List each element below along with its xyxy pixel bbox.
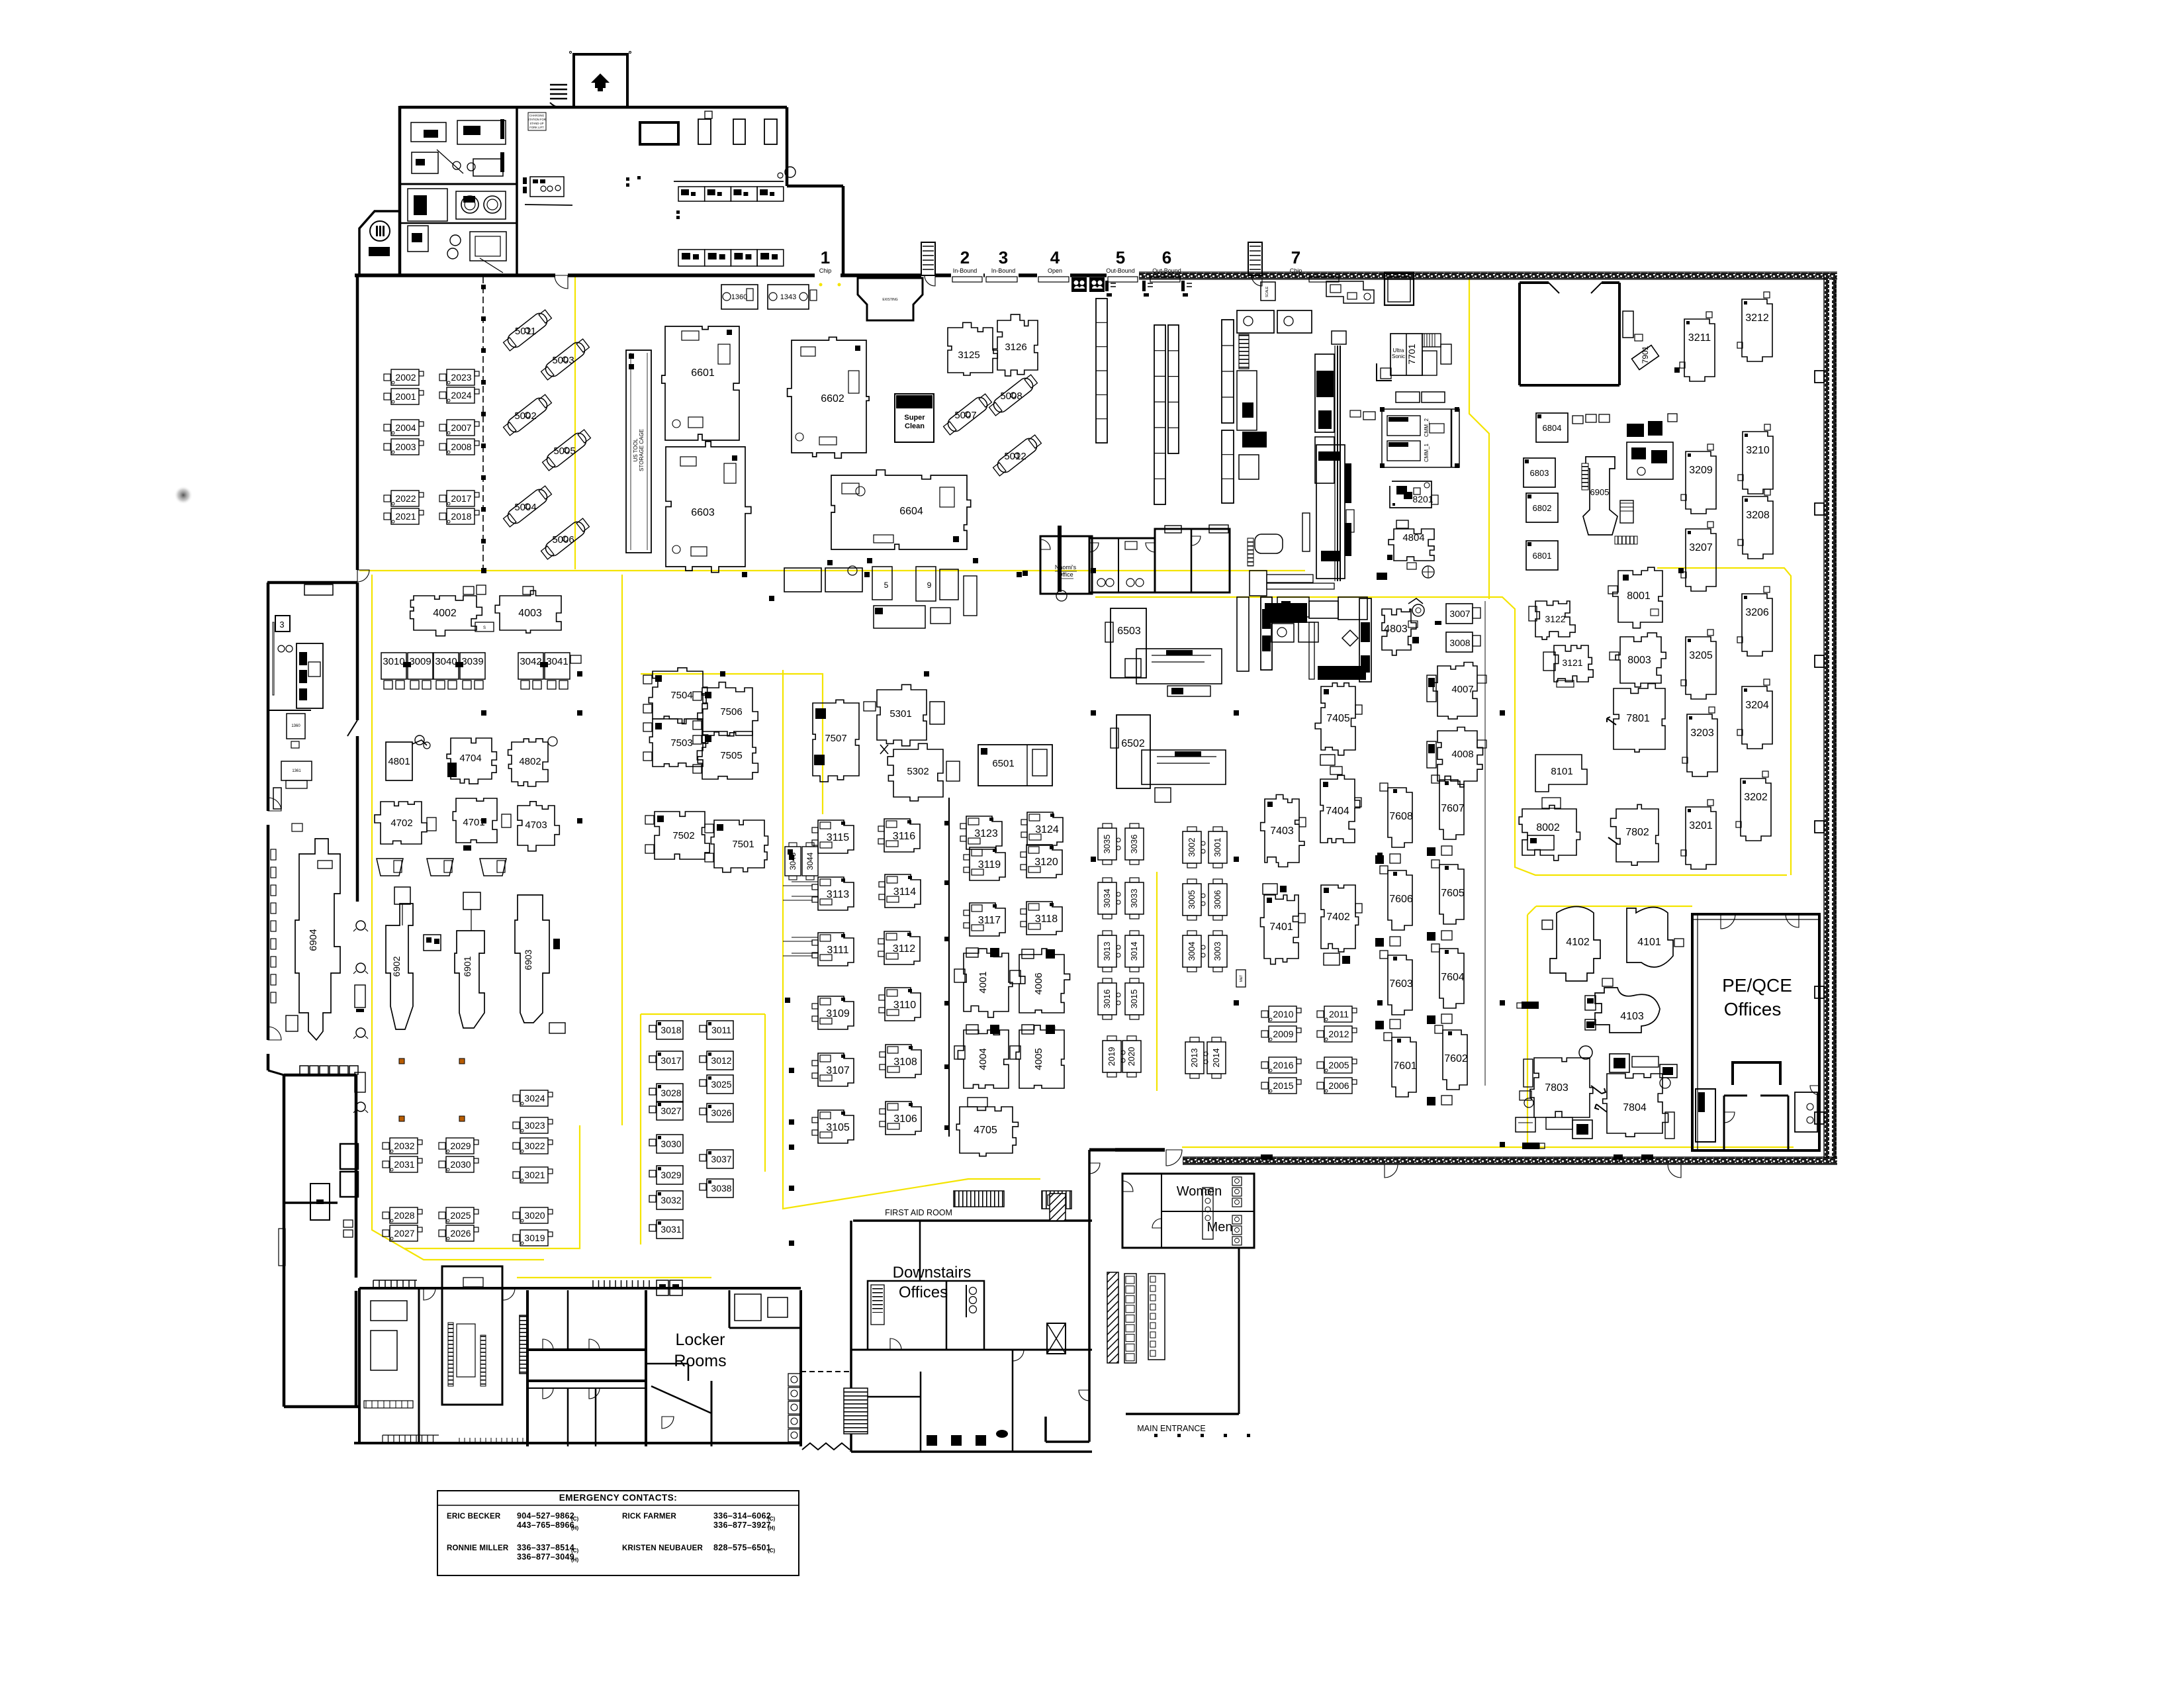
svg-text:828–575–6501: 828–575–6501	[713, 1543, 771, 1552]
svg-text:2: 2	[960, 248, 970, 267]
svg-text:3040: 3040	[435, 656, 457, 667]
svg-text:7608: 7608	[1389, 811, 1413, 822]
svg-text:(H): (H)	[571, 1557, 578, 1563]
svg-text:5003: 5003	[552, 355, 574, 366]
svg-text:4101: 4101	[1637, 937, 1661, 948]
svg-text:5012: 5012	[1004, 451, 1026, 462]
svg-text:2030: 2030	[450, 1159, 471, 1170]
svg-text:CMM_2: CMM_2	[1424, 418, 1430, 437]
svg-text:6801: 6801	[1533, 551, 1552, 561]
svg-text:2002: 2002	[395, 372, 416, 383]
svg-text:6601: 6601	[691, 367, 715, 379]
svg-text:Clean: Clean	[905, 422, 925, 430]
svg-text:Offices: Offices	[1724, 999, 1782, 1019]
svg-text:904–527–9862: 904–527–9862	[517, 1511, 574, 1521]
svg-text:4002: 4002	[433, 608, 457, 619]
svg-text:CMM_1: CMM_1	[1424, 443, 1430, 462]
svg-text:6501: 6501	[992, 758, 1014, 769]
svg-text:3005: 3005	[1187, 890, 1197, 910]
svg-text:3017: 3017	[660, 1055, 681, 1066]
svg-text:STORAGE CAGE: STORAGE CAGE	[639, 429, 645, 471]
svg-text:4006: 4006	[1033, 972, 1044, 994]
svg-text:2031: 2031	[394, 1159, 414, 1170]
svg-text:1361: 1361	[292, 769, 301, 773]
svg-text:3125: 3125	[958, 350, 979, 361]
svg-text:336–877–3927: 336–877–3927	[713, 1521, 771, 1530]
svg-text:4704: 4704	[459, 753, 481, 764]
svg-text:7607: 7607	[1441, 803, 1465, 814]
svg-text:5301: 5301	[889, 708, 911, 720]
svg-text:2025: 2025	[450, 1210, 471, 1221]
svg-text:3034: 3034	[1102, 889, 1112, 908]
svg-text:7507: 7507	[825, 733, 846, 744]
svg-text:3115: 3115	[827, 832, 850, 843]
svg-text:ERIC BECKER: ERIC BECKER	[447, 1513, 501, 1521]
svg-text:2005: 2005	[1328, 1060, 1349, 1070]
svg-text:Out-Bound: Out-Bound	[1152, 267, 1181, 274]
svg-text:3019: 3019	[524, 1233, 545, 1243]
svg-text:6603: 6603	[691, 507, 715, 518]
svg-text:2021: 2021	[395, 511, 416, 522]
svg-text:2007: 2007	[451, 422, 471, 433]
svg-text:3204: 3204	[1745, 700, 1769, 711]
svg-text:6905: 6905	[1590, 487, 1610, 497]
svg-text:3026: 3026	[711, 1107, 731, 1118]
svg-text:3018: 3018	[660, 1025, 681, 1035]
svg-text:SCALE: SCALE	[1265, 286, 1269, 297]
svg-text:3212: 3212	[1745, 312, 1769, 324]
svg-text:3003: 3003	[1212, 942, 1222, 961]
svg-text:3008: 3008	[1449, 637, 1470, 648]
svg-text:3039: 3039	[461, 656, 483, 667]
svg-text:7505: 7505	[720, 750, 742, 761]
svg-text:3020: 3020	[524, 1210, 545, 1221]
svg-text:3007: 3007	[1449, 608, 1470, 619]
svg-text:2026: 2026	[450, 1228, 471, 1239]
svg-text:STAND-UP: STAND-UP	[529, 122, 543, 125]
svg-text:3120: 3120	[1034, 857, 1058, 868]
svg-text:RICK FARMER: RICK FARMER	[622, 1513, 677, 1521]
svg-text:3209: 3209	[1689, 465, 1713, 476]
svg-text:5302: 5302	[907, 766, 929, 777]
svg-text:2015: 2015	[1273, 1080, 1293, 1091]
svg-text:5011: 5011	[515, 326, 536, 337]
svg-text:FIRST AID ROOM: FIRST AID ROOM	[885, 1208, 952, 1217]
svg-text:7405: 7405	[1326, 713, 1350, 724]
svg-text:7606: 7606	[1389, 894, 1413, 905]
svg-text:5005: 5005	[553, 445, 575, 457]
svg-text:3113: 3113	[827, 889, 850, 900]
svg-text:3202: 3202	[1744, 792, 1768, 803]
svg-text:6503: 6503	[1117, 626, 1141, 637]
svg-text:Open: Open	[1048, 267, 1062, 274]
svg-text:In-Bound: In-Bound	[953, 267, 978, 274]
svg-text:3010: 3010	[383, 656, 404, 667]
svg-text:8101: 8101	[1551, 766, 1572, 777]
svg-text:3109: 3109	[826, 1008, 850, 1019]
svg-text:6: 6	[1162, 248, 1171, 267]
svg-text:(C): (C)	[768, 1548, 775, 1554]
svg-text:8002: 8002	[1536, 822, 1560, 833]
svg-text:3044: 3044	[805, 852, 815, 870]
svg-text:3021: 3021	[524, 1170, 545, 1180]
svg-text:7605: 7605	[1441, 888, 1465, 899]
svg-text:1360: 1360	[731, 293, 747, 301]
svg-text:4804: 4804	[1402, 532, 1424, 543]
svg-text:3025: 3025	[711, 1079, 731, 1090]
svg-text:1360: 1360	[291, 724, 300, 728]
svg-text:MAIN ENTRANCE: MAIN ENTRANCE	[1137, 1424, 1205, 1433]
svg-text:4703: 4703	[525, 820, 547, 831]
svg-text:336–337–8514: 336–337–8514	[517, 1543, 574, 1552]
svg-text:Locker: Locker	[675, 1331, 725, 1349]
svg-text:US TOOL: US TOOL	[633, 438, 639, 461]
svg-text:2006: 2006	[1328, 1080, 1349, 1091]
svg-text:2020: 2020	[1126, 1047, 1136, 1066]
svg-text:3106: 3106	[893, 1113, 917, 1125]
svg-text:3027: 3027	[660, 1105, 681, 1116]
svg-text:7404: 7404	[1326, 806, 1349, 817]
svg-text:3126: 3126	[1005, 342, 1026, 353]
svg-text:3203: 3203	[1690, 727, 1714, 739]
svg-text:4103: 4103	[1620, 1011, 1644, 1022]
svg-text:2024: 2024	[451, 390, 471, 400]
svg-text:7701: 7701	[1406, 344, 1417, 364]
svg-text:7: 7	[1291, 248, 1300, 267]
svg-text:3022: 3022	[524, 1141, 545, 1151]
svg-text:3121: 3121	[1562, 657, 1582, 668]
svg-text:3110: 3110	[893, 1000, 917, 1011]
svg-text:2019: 2019	[1107, 1047, 1116, 1066]
svg-text:3002: 3002	[1187, 838, 1197, 857]
svg-text:2017: 2017	[451, 493, 471, 504]
svg-text:8001: 8001	[1627, 590, 1651, 602]
svg-text:5002: 5002	[514, 410, 536, 422]
svg-text:3118: 3118	[1035, 914, 1058, 925]
svg-text:3123: 3123	[974, 828, 998, 839]
svg-text:3201: 3201	[1689, 820, 1713, 831]
svg-text:3205: 3205	[1689, 650, 1713, 661]
svg-text:3028: 3028	[660, 1088, 681, 1098]
svg-text:4004: 4004	[978, 1048, 989, 1070]
svg-text:2022: 2022	[395, 493, 416, 504]
svg-text:Chip: Chip	[1290, 267, 1302, 274]
svg-text:6604: 6604	[899, 506, 923, 517]
svg-text:EMERGENCY CONTACTS:: EMERGENCY CONTACTS:	[559, 1493, 678, 1503]
svg-text:8201: 8201	[1412, 494, 1433, 504]
svg-text:2011: 2011	[1329, 1009, 1349, 1019]
svg-text:FL: FL	[735, 191, 739, 195]
svg-text:2001: 2001	[395, 391, 416, 402]
svg-text:7504: 7504	[670, 690, 692, 701]
svg-text:2018: 2018	[451, 511, 471, 522]
svg-text:5006: 5006	[552, 534, 574, 545]
svg-text:6903: 6903	[523, 949, 533, 970]
svg-text:Sonic: Sonic	[1392, 353, 1405, 359]
svg-text:3112: 3112	[893, 943, 916, 955]
svg-text:5007: 5007	[954, 410, 976, 421]
svg-text:7801: 7801	[1626, 713, 1650, 724]
svg-text:6803: 6803	[1530, 468, 1549, 478]
svg-text:443–765–8966: 443–765–8966	[517, 1521, 574, 1530]
svg-text:4001: 4001	[978, 971, 989, 993]
svg-text:1: 1	[821, 248, 830, 267]
svg-text:3114: 3114	[893, 886, 917, 898]
svg-text:3206: 3206	[1745, 607, 1769, 618]
svg-text:3013: 3013	[1102, 942, 1112, 961]
svg-text:7502: 7502	[672, 830, 694, 841]
svg-text:5: 5	[884, 581, 889, 590]
svg-text:2016: 2016	[1273, 1060, 1293, 1070]
svg-text:3033: 3033	[1129, 889, 1139, 908]
svg-text:4803: 4803	[1384, 624, 1408, 635]
svg-text:3107: 3107	[826, 1065, 850, 1076]
svg-text:2008: 2008	[451, 442, 471, 452]
svg-text:3037: 3037	[711, 1154, 731, 1164]
svg-text:2023: 2023	[451, 372, 471, 383]
svg-text:FL: FL	[682, 191, 686, 195]
svg-text:5: 5	[1116, 248, 1125, 267]
svg-text:3111: 3111	[827, 945, 848, 956]
svg-text:8003: 8003	[1627, 655, 1651, 666]
svg-text:3208: 3208	[1746, 510, 1770, 521]
svg-text:2009: 2009	[1273, 1029, 1293, 1039]
svg-text:4007: 4007	[1451, 684, 1473, 695]
svg-text:9: 9	[927, 581, 932, 590]
svg-text:7802: 7802	[1625, 827, 1649, 838]
svg-text:6804: 6804	[1543, 423, 1562, 433]
svg-text:FL: FL	[709, 191, 713, 195]
svg-text:In-Bound: In-Bound	[991, 267, 1016, 274]
svg-text:4008: 4008	[1451, 749, 1473, 760]
svg-text:6802: 6802	[1533, 503, 1552, 513]
svg-text:4102: 4102	[1566, 937, 1590, 948]
svg-text:4801: 4801	[388, 756, 410, 767]
svg-text:3015: 3015	[1129, 990, 1139, 1009]
svg-text:Ultra: Ultra	[1393, 348, 1404, 353]
svg-text:3011: 3011	[711, 1025, 731, 1035]
svg-text:3031: 3031	[660, 1224, 681, 1235]
svg-text:7604: 7604	[1441, 972, 1465, 983]
svg-text:1343: 1343	[780, 293, 796, 301]
svg-text:3009: 3009	[409, 656, 431, 667]
svg-text:RONNIE MILLER: RONNIE MILLER	[447, 1544, 509, 1552]
svg-text:3117: 3117	[978, 915, 1001, 926]
svg-text:3030: 3030	[660, 1139, 681, 1149]
svg-text:3210: 3210	[1746, 445, 1770, 456]
svg-text:3012: 3012	[711, 1055, 731, 1066]
svg-text:Out-Bound: Out-Bound	[1106, 267, 1135, 274]
svg-text:3006: 3006	[1212, 890, 1222, 910]
svg-text:6502: 6502	[1121, 738, 1145, 749]
svg-text:Chip: Chip	[819, 267, 832, 274]
svg-text:3032: 3032	[660, 1195, 681, 1205]
svg-text:PE/QCE: PE/QCE	[1722, 975, 1792, 996]
svg-text:3041: 3041	[546, 656, 568, 667]
svg-text:Rooms: Rooms	[674, 1352, 726, 1370]
svg-text:5004: 5004	[514, 502, 536, 513]
svg-text:3004: 3004	[1187, 942, 1197, 961]
svg-text:4701: 4701	[463, 817, 484, 828]
svg-text:3038: 3038	[711, 1183, 731, 1194]
svg-text:4802: 4802	[519, 756, 541, 767]
svg-text:7501: 7501	[732, 839, 754, 850]
svg-text:3042: 3042	[520, 656, 541, 667]
svg-text:7803: 7803	[1545, 1082, 1569, 1094]
svg-text:6901: 6901	[462, 956, 473, 976]
svg-text:7403: 7403	[1270, 825, 1294, 837]
svg-text:6902: 6902	[391, 956, 402, 976]
svg-text:FL: FL	[761, 191, 765, 195]
svg-text:2028: 2028	[394, 1210, 414, 1221]
svg-text:STATION FOR: STATION FOR	[527, 118, 546, 121]
svg-text:3211: 3211	[1688, 332, 1711, 344]
svg-text:3207: 3207	[1689, 542, 1713, 553]
svg-text:3122: 3122	[1545, 614, 1565, 624]
svg-text:KRISTEN NEUBAUER: KRISTEN NEUBAUER	[622, 1544, 704, 1552]
svg-text:3124: 3124	[1035, 824, 1059, 835]
svg-text:2027: 2027	[394, 1228, 414, 1239]
svg-text:2014: 2014	[1211, 1049, 1221, 1068]
svg-text:2010: 2010	[1273, 1009, 1293, 1019]
svg-text:2003: 2003	[395, 442, 416, 452]
svg-text:(H): (H)	[571, 1525, 578, 1531]
svg-text:7901: 7901	[1641, 346, 1650, 363]
svg-text:M&T: M&T	[1240, 975, 1244, 982]
svg-text:3105: 3105	[826, 1122, 850, 1133]
svg-text:3023: 3023	[524, 1120, 545, 1131]
svg-text:3024: 3024	[524, 1093, 545, 1103]
svg-text:3016: 3016	[1102, 990, 1112, 1009]
svg-text:6904: 6904	[308, 929, 319, 951]
svg-text:4: 4	[1050, 248, 1060, 267]
svg-text:Offices: Offices	[899, 1284, 948, 1301]
svg-text:7402: 7402	[1326, 912, 1350, 923]
svg-text:Downstairs: Downstairs	[893, 1264, 972, 1282]
svg-text:7603: 7603	[1389, 978, 1413, 990]
svg-text:S: S	[483, 626, 486, 630]
svg-text:3014: 3014	[1129, 942, 1139, 961]
svg-text:2012: 2012	[1328, 1029, 1349, 1039]
svg-text:CHARGING: CHARGING	[529, 114, 545, 117]
svg-text:3035: 3035	[1102, 835, 1112, 854]
svg-text:4005: 4005	[1033, 1048, 1044, 1070]
svg-text:7401: 7401	[1269, 921, 1293, 933]
svg-text:3: 3	[999, 248, 1008, 267]
svg-text:3043: 3043	[788, 852, 797, 870]
svg-text:Men: Men	[1207, 1220, 1233, 1235]
svg-text:EXISTING: EXISTING	[882, 298, 897, 302]
svg-text:4705: 4705	[974, 1125, 997, 1136]
svg-text:Women: Women	[1177, 1184, 1222, 1199]
svg-text:(H): (H)	[768, 1525, 775, 1531]
svg-text:4702: 4702	[390, 818, 412, 829]
svg-text:7602: 7602	[1444, 1053, 1468, 1064]
svg-text:3029: 3029	[660, 1170, 681, 1180]
svg-text:336–314–6062: 336–314–6062	[713, 1511, 771, 1521]
svg-text:7804: 7804	[1623, 1102, 1647, 1113]
svg-text:3108: 3108	[893, 1056, 917, 1068]
svg-text:3001: 3001	[1212, 838, 1222, 857]
svg-text:2032: 2032	[394, 1141, 414, 1151]
svg-text:7503: 7503	[670, 737, 692, 749]
svg-text:2029: 2029	[450, 1141, 471, 1151]
svg-text:6602: 6602	[821, 393, 844, 404]
svg-text:5008: 5008	[1000, 391, 1022, 402]
svg-text:3116: 3116	[893, 831, 916, 842]
svg-text:7506: 7506	[720, 706, 742, 718]
svg-text:336–877–3049: 336–877–3049	[517, 1552, 574, 1562]
svg-text:Super: Super	[904, 414, 925, 422]
svg-text:3119: 3119	[978, 859, 1001, 870]
svg-text:4003: 4003	[518, 608, 542, 619]
svg-text:3: 3	[279, 620, 284, 630]
svg-text:2013: 2013	[1189, 1049, 1199, 1068]
svg-text:2004: 2004	[395, 422, 416, 433]
svg-text:7601: 7601	[1393, 1060, 1417, 1072]
svg-text:FORK LIFT: FORK LIFT	[529, 126, 544, 129]
svg-text:3036: 3036	[1129, 835, 1139, 854]
